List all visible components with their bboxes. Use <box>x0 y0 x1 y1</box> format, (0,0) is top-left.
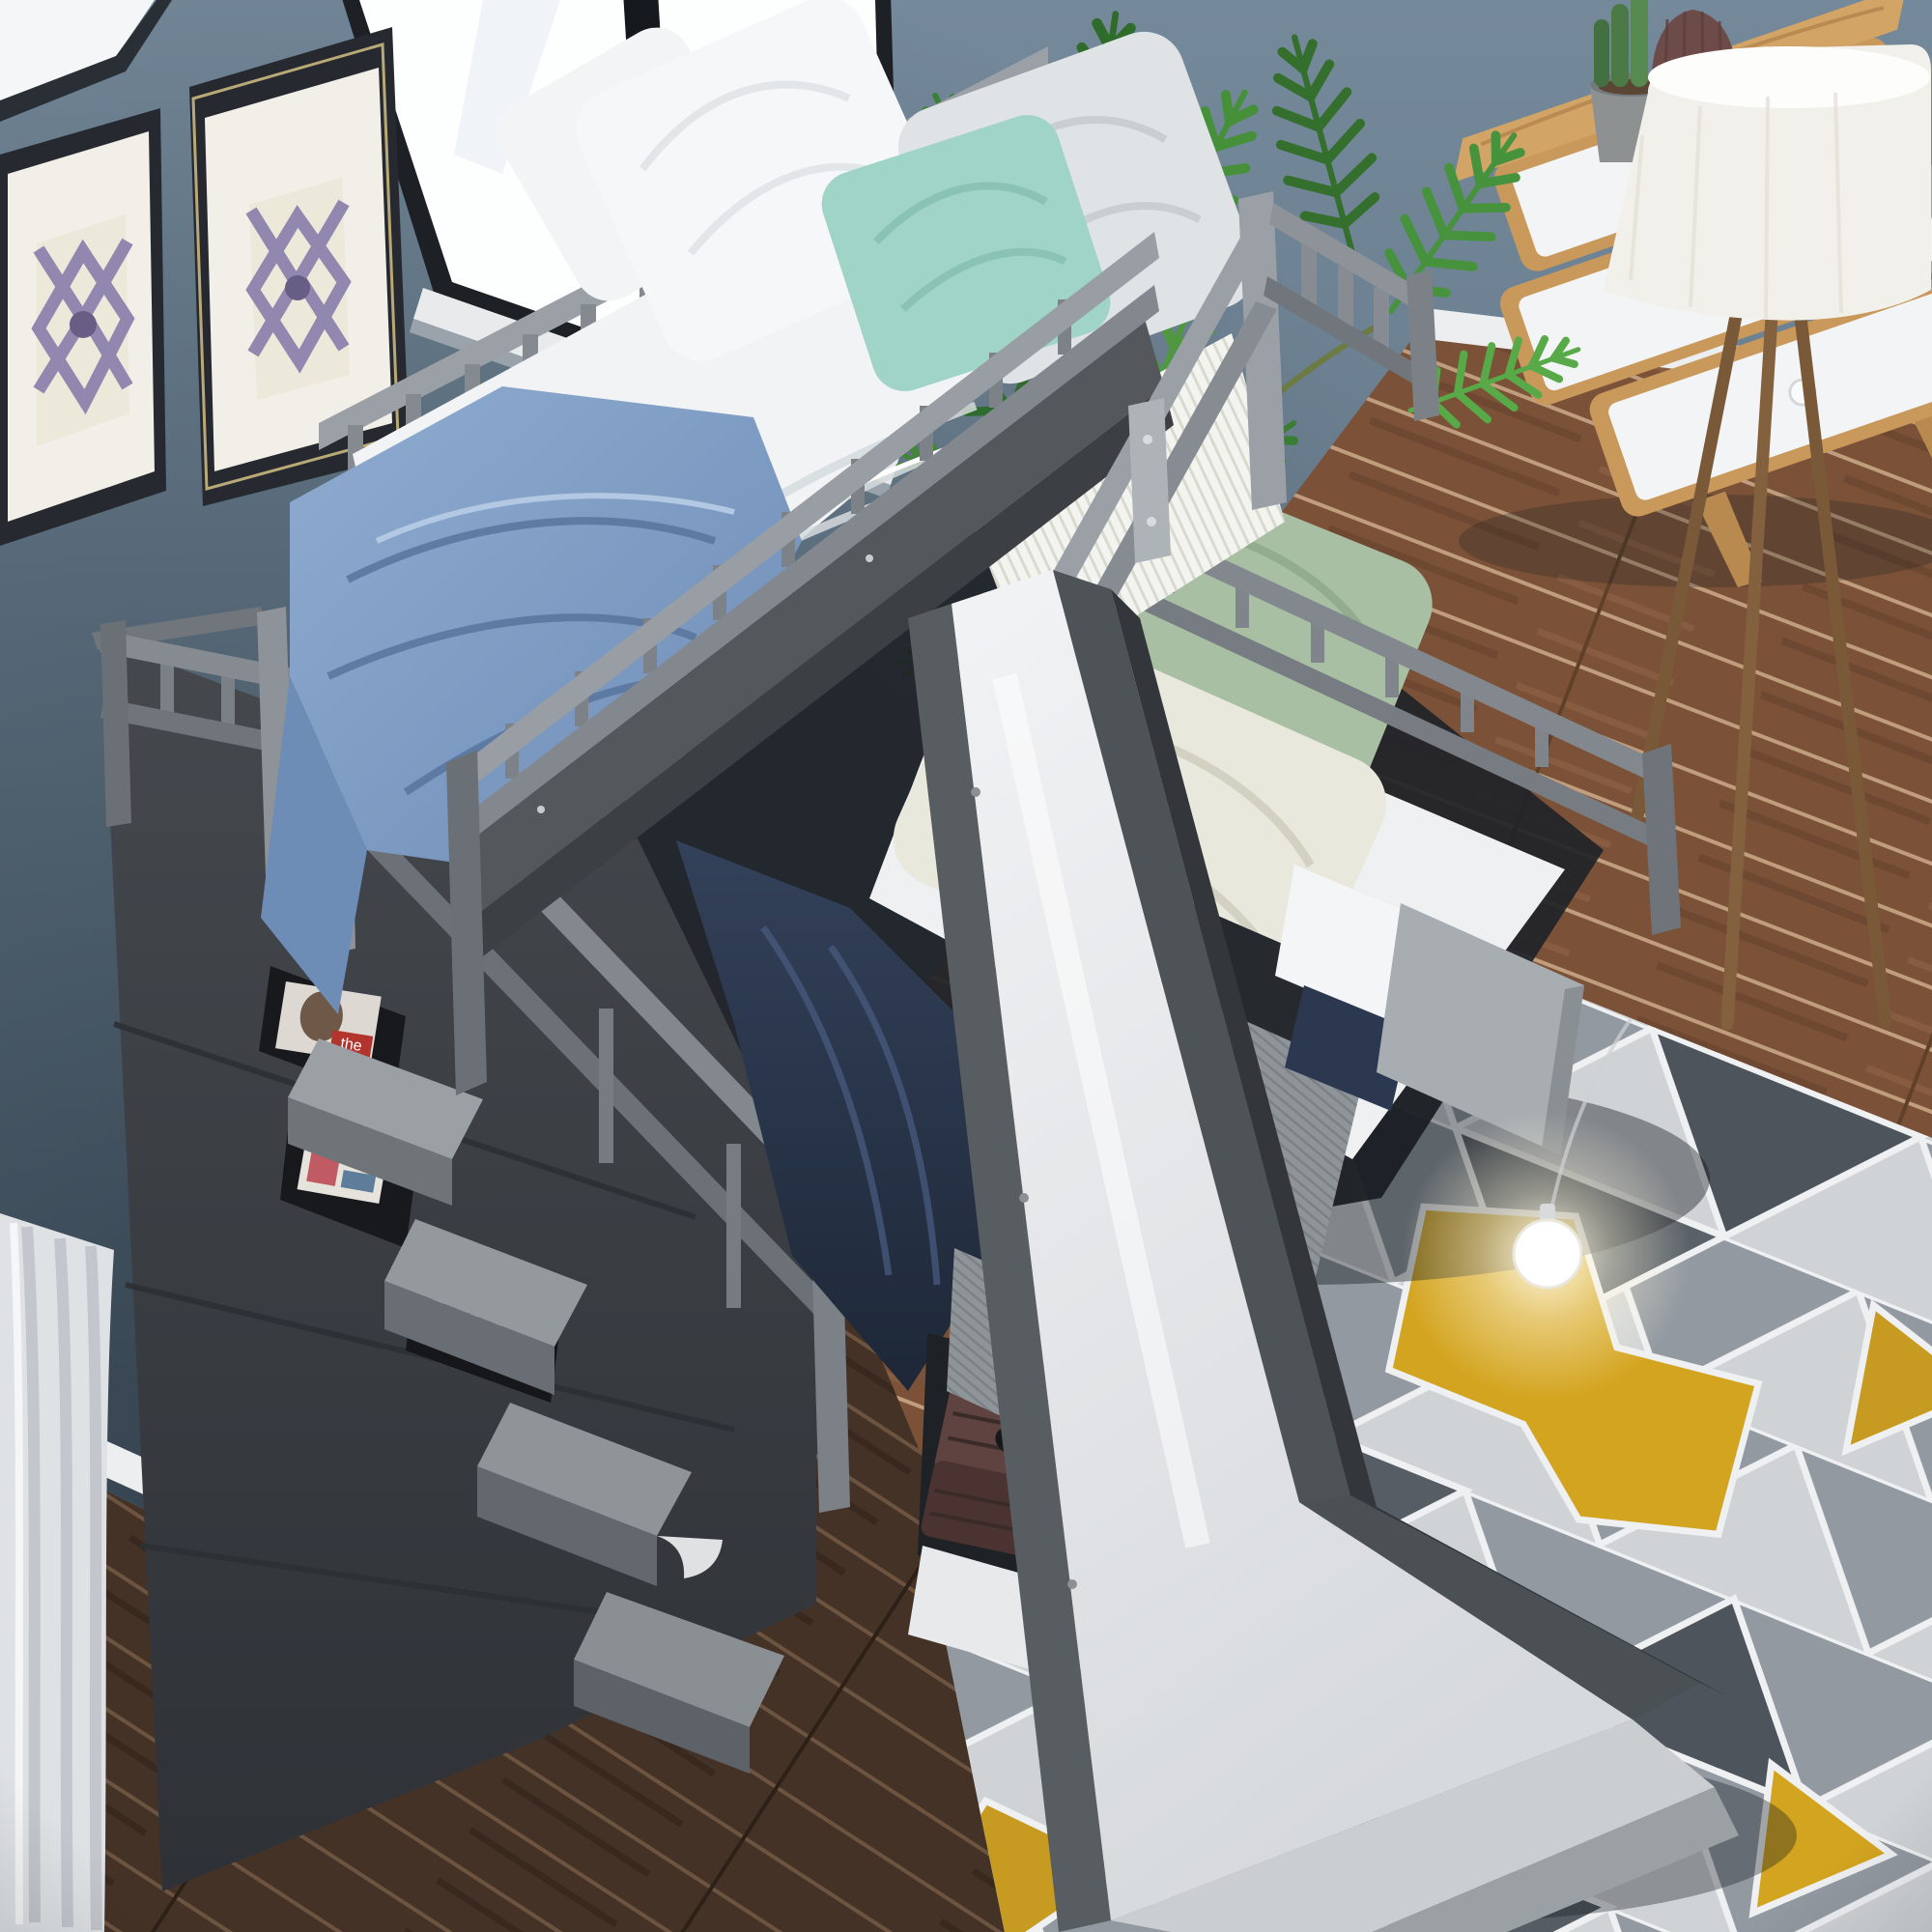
bedroom-scene: the <box>0 0 1932 1932</box>
photo-vignette <box>0 0 1932 1932</box>
